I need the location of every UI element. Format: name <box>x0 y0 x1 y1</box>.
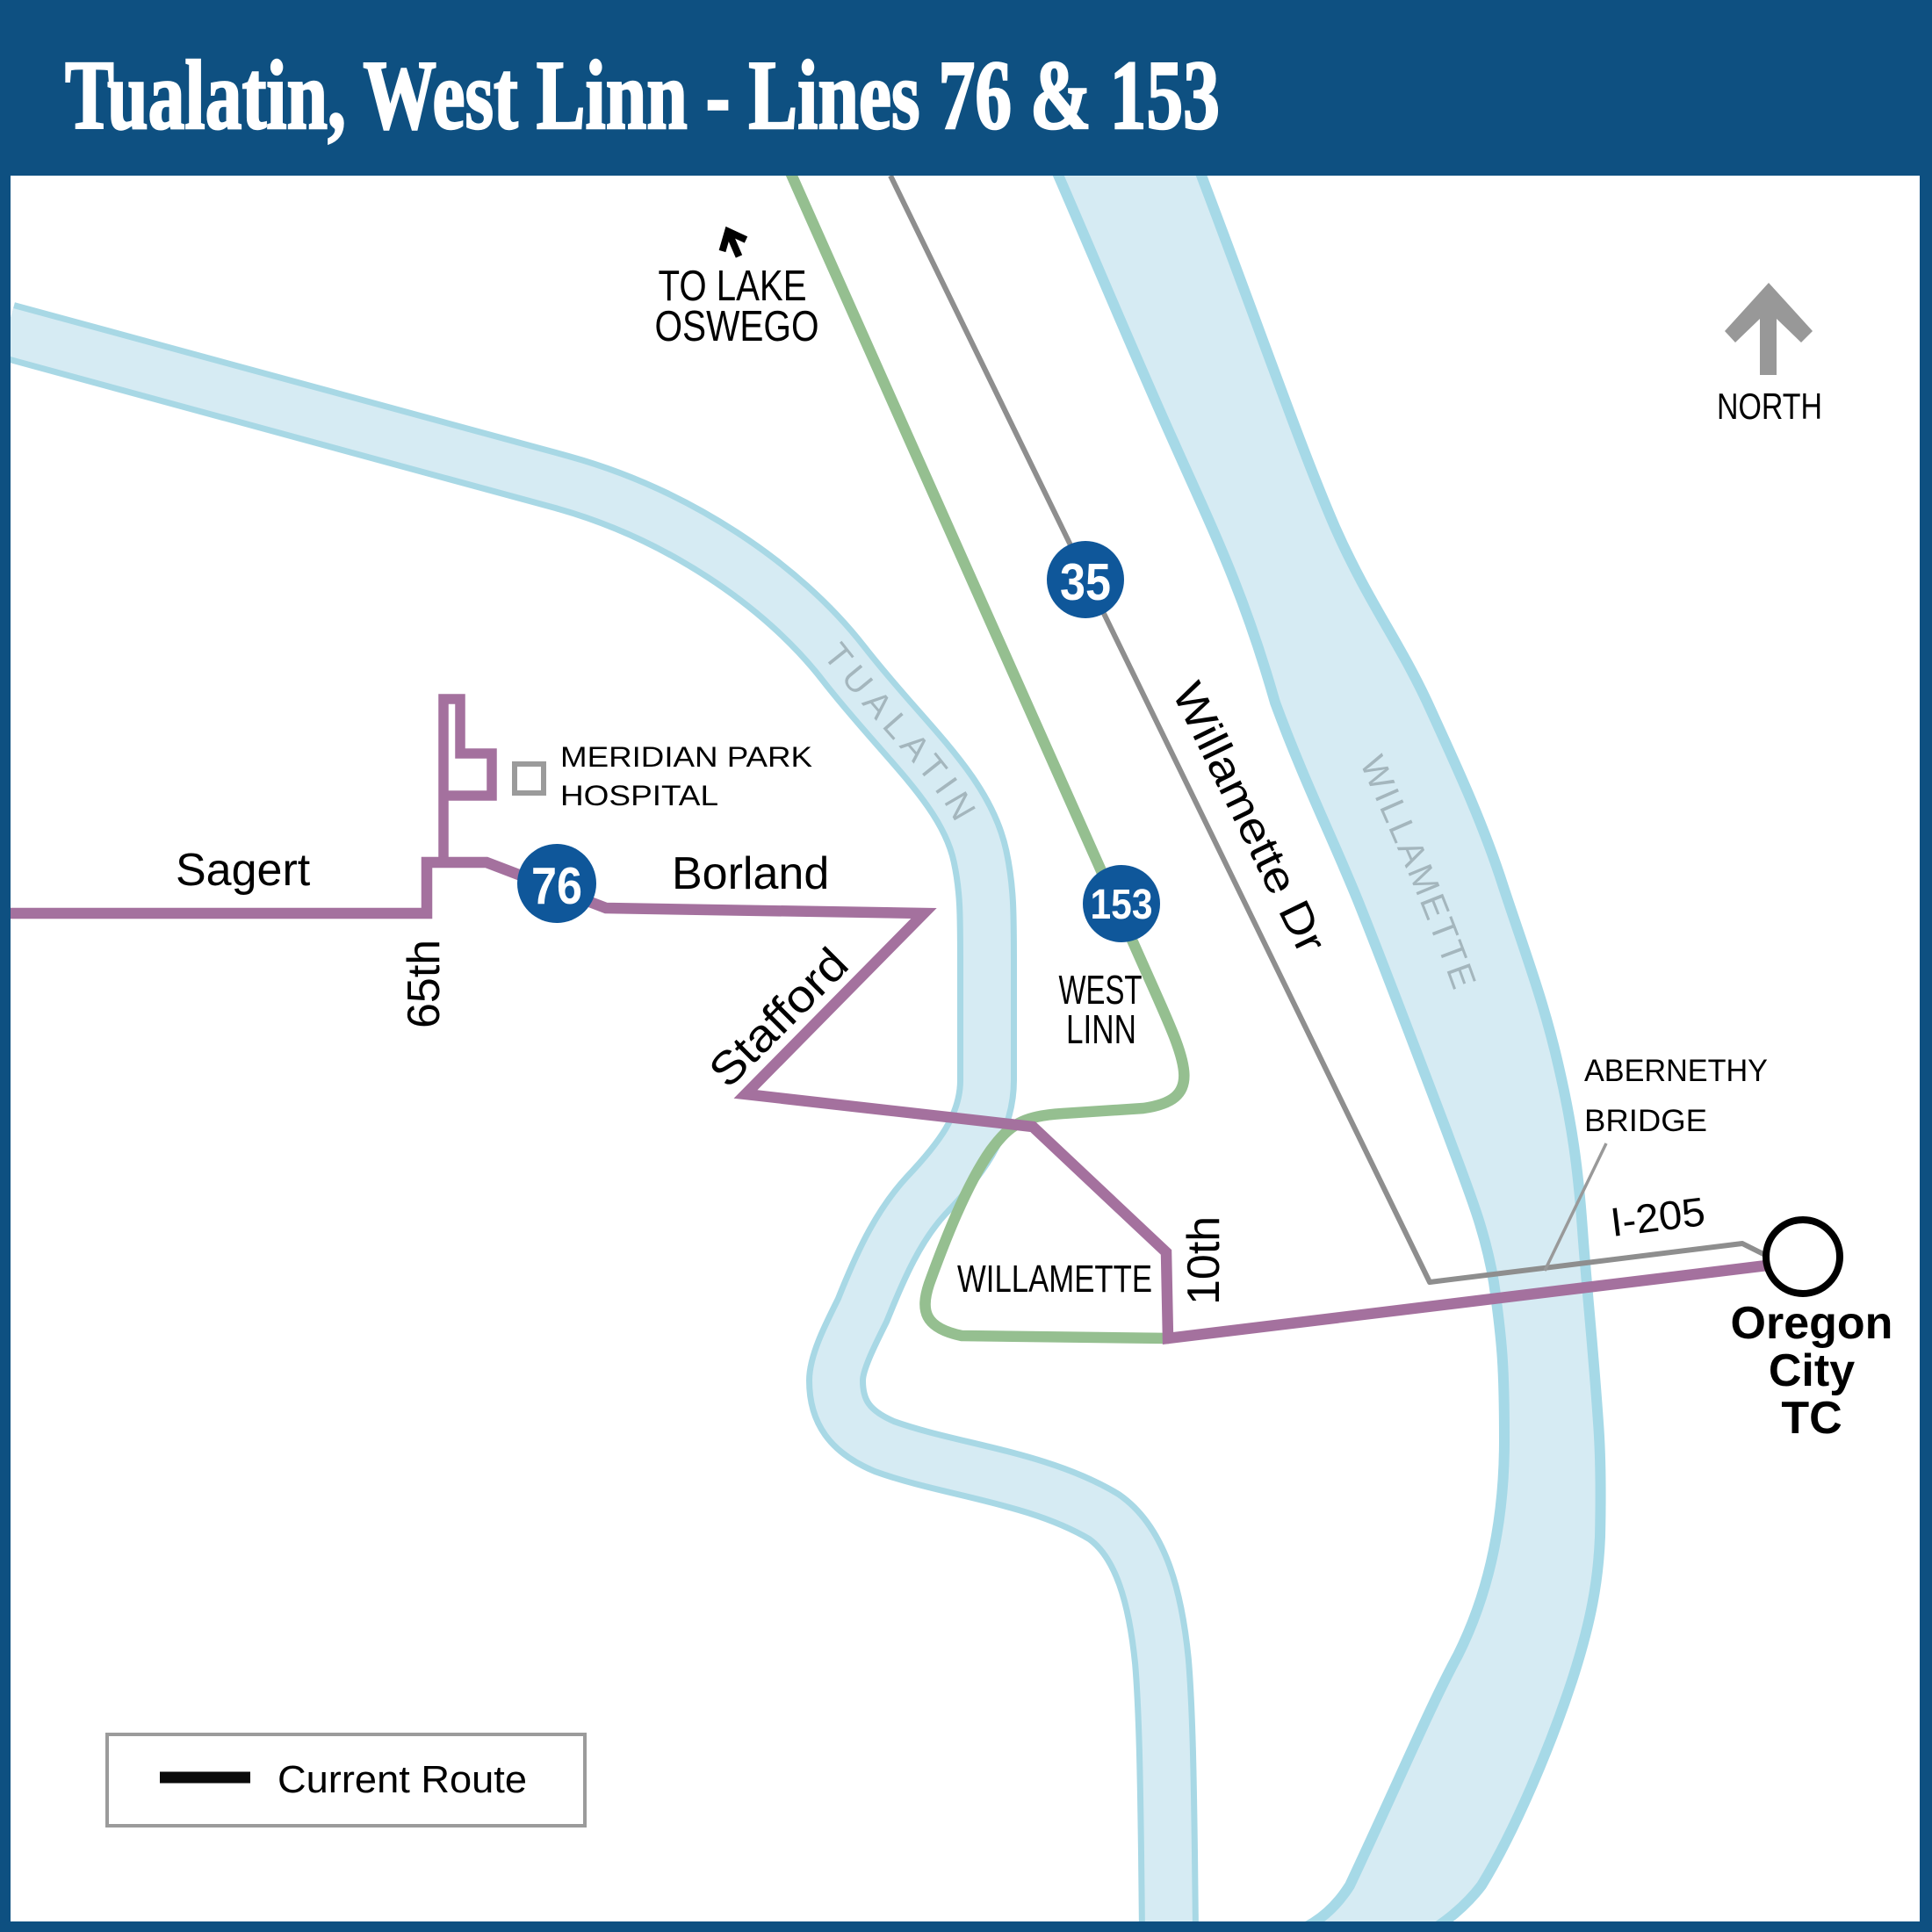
svg-text:LINN: LINN <box>1066 1006 1136 1052</box>
svg-text:35: 35 <box>1060 553 1111 611</box>
svg-text:OSWEGO: OSWEGO <box>655 303 819 350</box>
svg-text:10th: 10th <box>1179 1216 1229 1305</box>
svg-text:HOSPITAL: HOSPITAL <box>560 780 718 811</box>
svg-text:Sagert: Sagert <box>176 845 311 896</box>
svg-text:TC: TC <box>1781 1393 1842 1444</box>
svg-text:NORTH: NORTH <box>1717 386 1822 427</box>
svg-text:65th: 65th <box>399 940 450 1028</box>
svg-text:WILLAMETTE: WILLAMETTE <box>957 1258 1152 1301</box>
svg-text:153: 153 <box>1091 882 1153 928</box>
svg-text:Tualatin, West Linn - Lines 76: Tualatin, West Linn - Lines 76 & 153 <box>65 41 1220 150</box>
svg-text:BRIDGE: BRIDGE <box>1584 1104 1707 1138</box>
svg-text:Borland: Borland <box>672 848 829 899</box>
svg-text:Oregon: Oregon <box>1731 1298 1893 1349</box>
svg-text:Current Route: Current Route <box>278 1758 527 1801</box>
svg-text:MERIDIAN PARK: MERIDIAN PARK <box>560 741 812 773</box>
svg-text:City: City <box>1769 1345 1855 1396</box>
svg-text:ABERNETHY: ABERNETHY <box>1584 1054 1768 1088</box>
svg-text:76: 76 <box>531 857 582 915</box>
